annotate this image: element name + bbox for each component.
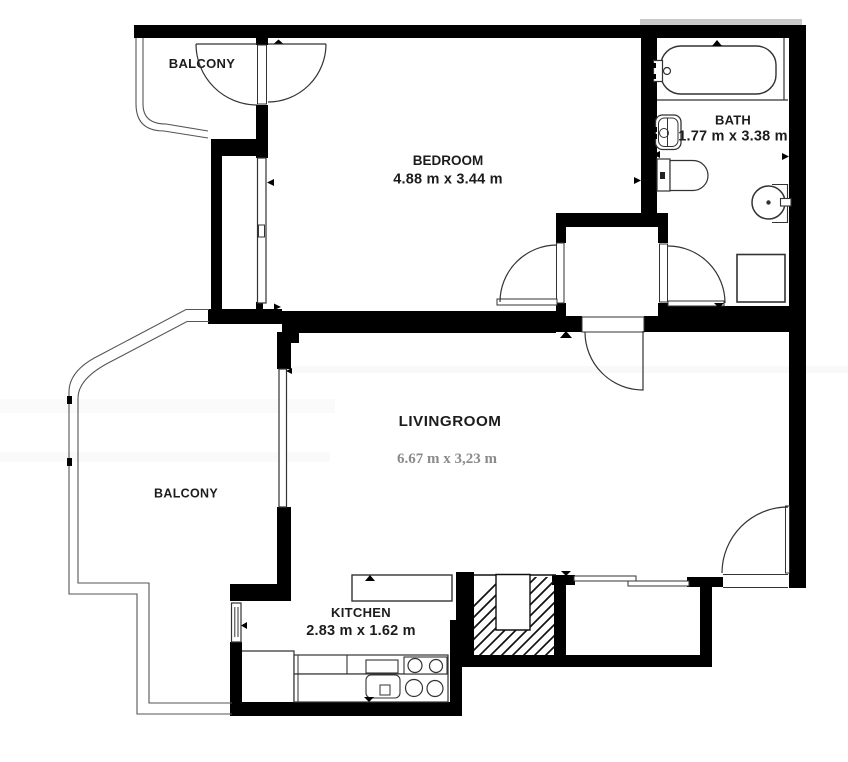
svg-text:BEDROOM: BEDROOM <box>413 153 484 168</box>
svg-text:BALCONY: BALCONY <box>169 56 235 71</box>
svg-text:KITCHEN: KITCHEN <box>331 605 391 620</box>
svg-text:2.83 m x 1.62 m: 2.83 m x 1.62 m <box>306 623 415 639</box>
svg-text:6.67 m x 3,23 m: 6.67 m x 3,23 m <box>397 451 497 467</box>
svg-text:LIVINGROOM: LIVINGROOM <box>399 413 502 430</box>
svg-text:BATH: BATH <box>715 113 751 128</box>
svg-text:BALCONY: BALCONY <box>154 487 218 501</box>
svg-text:4.88 m x 3.44 m: 4.88 m x 3.44 m <box>393 172 502 188</box>
svg-text:1.77 m x 3.38 m: 1.77 m x 3.38 m <box>678 129 787 145</box>
